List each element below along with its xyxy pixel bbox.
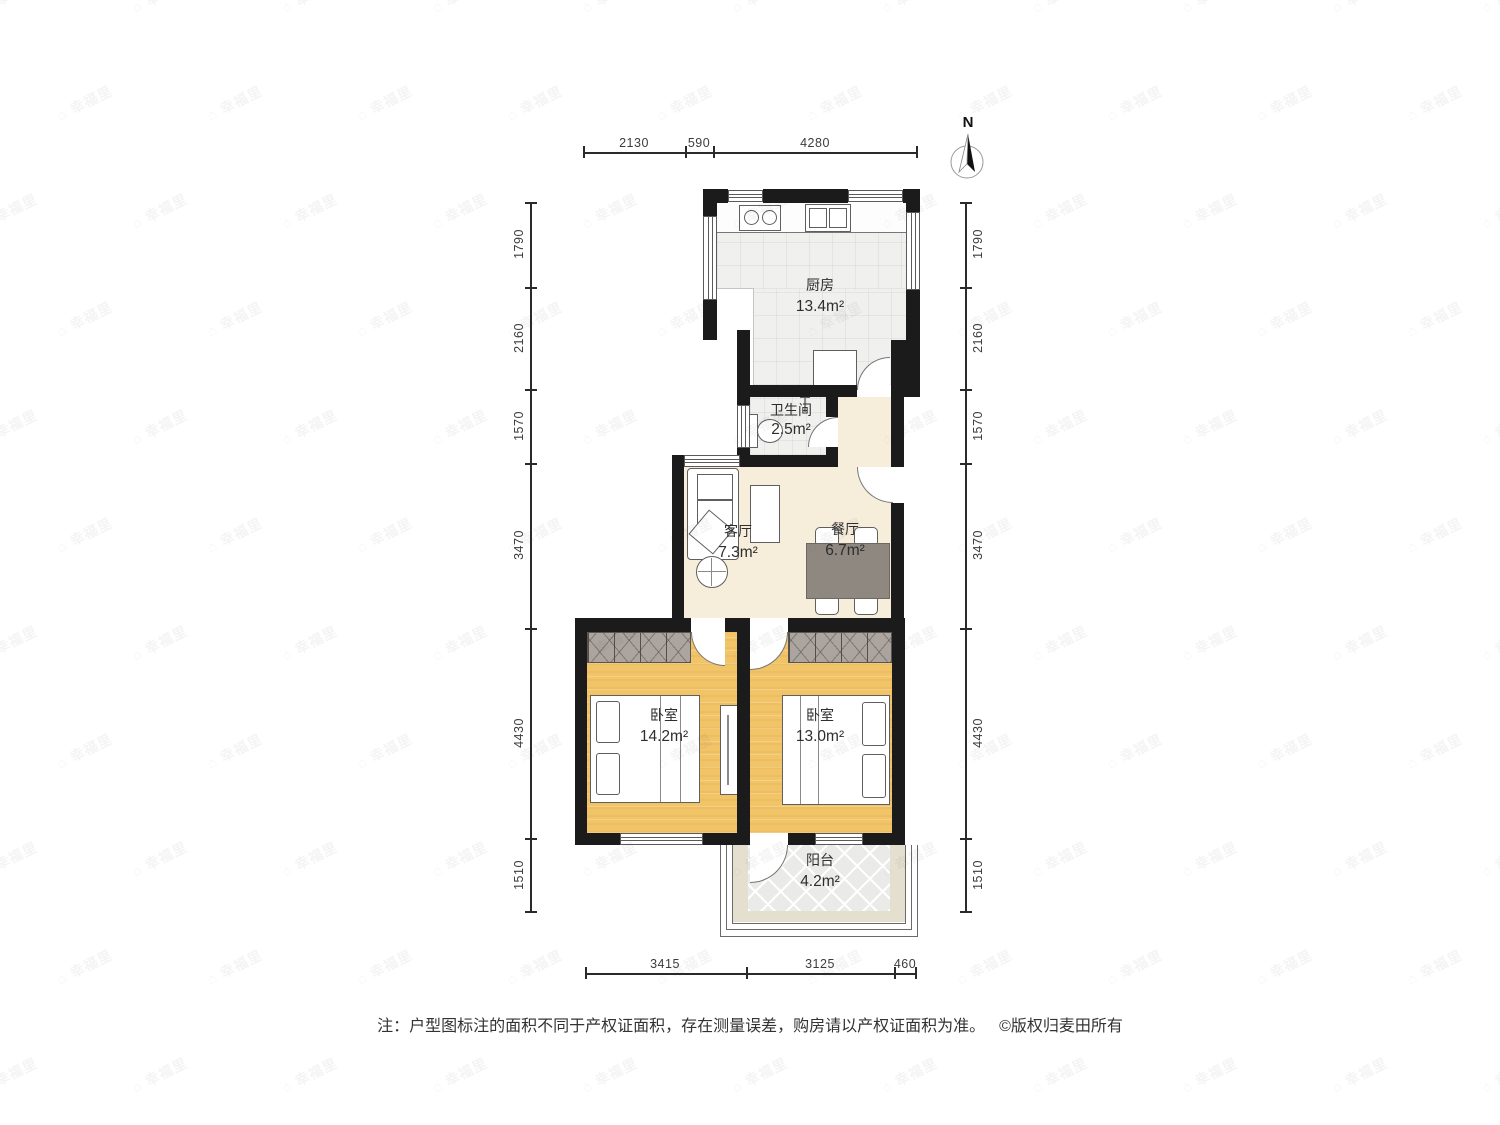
fan-cross [711,558,712,586]
dim-value: 1570 [971,411,985,441]
room-label-bedroom-right: 卧室 13.0m² [796,706,844,747]
dim-value: 1510 [512,860,526,890]
kitchen-window [728,190,763,202]
wall-segment [737,618,750,845]
sink-basin [809,208,827,228]
dim-value: 1510 [971,860,985,890]
tv-screen [727,715,729,785]
copyright-text: ©版权归麦田所有 [999,1018,1123,1035]
kitchen-window [906,212,920,290]
room-name: 阳台 [800,851,840,871]
wall-segment [891,503,904,618]
wall-segment [826,397,838,417]
pillow [596,753,620,795]
north-compass: N [935,112,1005,192]
sink-basin [829,208,847,228]
room-area: 14.2m² [640,726,688,748]
wall-segment [788,833,815,845]
wall-segment [672,455,684,618]
room-label-bedroom-left: 卧室 14.2m² [640,706,688,747]
wall-segment [703,833,750,845]
room-area: 7.3m² [718,542,758,564]
wall-segment [891,397,904,467]
pillow [862,702,886,746]
dim-line-bottom [585,973,916,975]
stove-burner [762,210,777,225]
pillow [596,701,620,743]
room-area: 4.2m² [800,871,840,893]
dim-value: 3415 [650,957,680,971]
wall-segment [906,189,920,212]
room-name: 餐厅 [825,520,865,540]
dim-line-left [530,202,532,912]
dim-value: 3125 [805,957,835,971]
kitchen-window [848,190,903,202]
wall-segment [575,618,587,845]
dim-value: 4280 [800,136,830,150]
dim-value: 1790 [512,229,526,259]
room-name: 卫生间 [770,402,812,420]
floor-plan: 厨房 13.4m² 卫生间 2.5m² 客厅 7.3m² 餐厅 6.7m² 卧室… [0,0,1500,1125]
wall-segment [763,189,848,203]
dim-value: 2160 [512,323,526,353]
dim-line-top [583,152,917,154]
wall-segment [575,833,620,845]
wall-segment [703,300,717,340]
fan-cross [698,571,726,572]
dim-value: 4430 [971,718,985,748]
room-name: 卧室 [796,706,844,726]
dim-value: 1570 [512,411,526,441]
wall-segment [737,385,857,397]
fridge [813,350,857,390]
dim-value: 2130 [619,136,649,150]
room-area: 13.0m² [796,726,844,748]
wall-segment [891,340,920,397]
bathroom-window [737,405,750,448]
dim-value: 3470 [512,530,526,560]
room-area: 13.4m² [796,296,844,318]
room-label-bathroom: 卫生间 2.5m² [770,402,812,439]
hallway-floor [838,397,891,467]
wall-segment [575,618,691,632]
wall-segment [906,290,920,345]
wall-segment [863,833,905,845]
room-label-living: 客厅 7.3m² [718,522,758,563]
dim-value: 590 [688,136,710,150]
room-label-dining: 餐厅 6.7m² [825,520,865,561]
wall-segment [740,455,838,467]
wardrobe [788,632,892,663]
room-area: 6.7m² [825,540,865,562]
room-name: 客厅 [718,522,758,542]
pillow [862,754,886,798]
dim-value: 4430 [512,718,526,748]
dim-value: 2160 [971,323,985,353]
disclaimer-text: 注：户型图标注的面积不同于产权证面积，存在测量误差，购房请以产权证面积为准。 [377,1018,985,1035]
wall-segment [737,330,750,405]
compass-n-label: N [959,114,977,131]
kitchen-window [703,216,717,300]
room-name: 卧室 [640,706,688,726]
wall-segment [788,618,905,632]
dim-value: 1790 [971,229,985,259]
dim-value: 3470 [971,530,985,560]
room-name: 厨房 [796,276,844,296]
tv-stand [720,705,738,795]
living-window [684,455,740,467]
dim-value: 460 [894,957,916,971]
dim-line-right [965,202,967,912]
wall-segment [703,189,717,216]
stove-burner [744,210,759,225]
room-label-kitchen: 厨房 13.4m² [796,276,844,317]
balcony-window [815,833,863,845]
room-label-balcony: 阳台 4.2m² [800,851,840,892]
room-area: 2.5m² [770,420,812,439]
sofa-cushion [697,474,733,500]
wall-segment [892,618,905,845]
wardrobe [587,632,691,663]
bedroom-window [620,833,703,845]
footer-note: 注：户型图标注的面积不同于产权证面积，存在测量误差，购房请以产权证面积为准。©版… [0,1012,1500,1036]
